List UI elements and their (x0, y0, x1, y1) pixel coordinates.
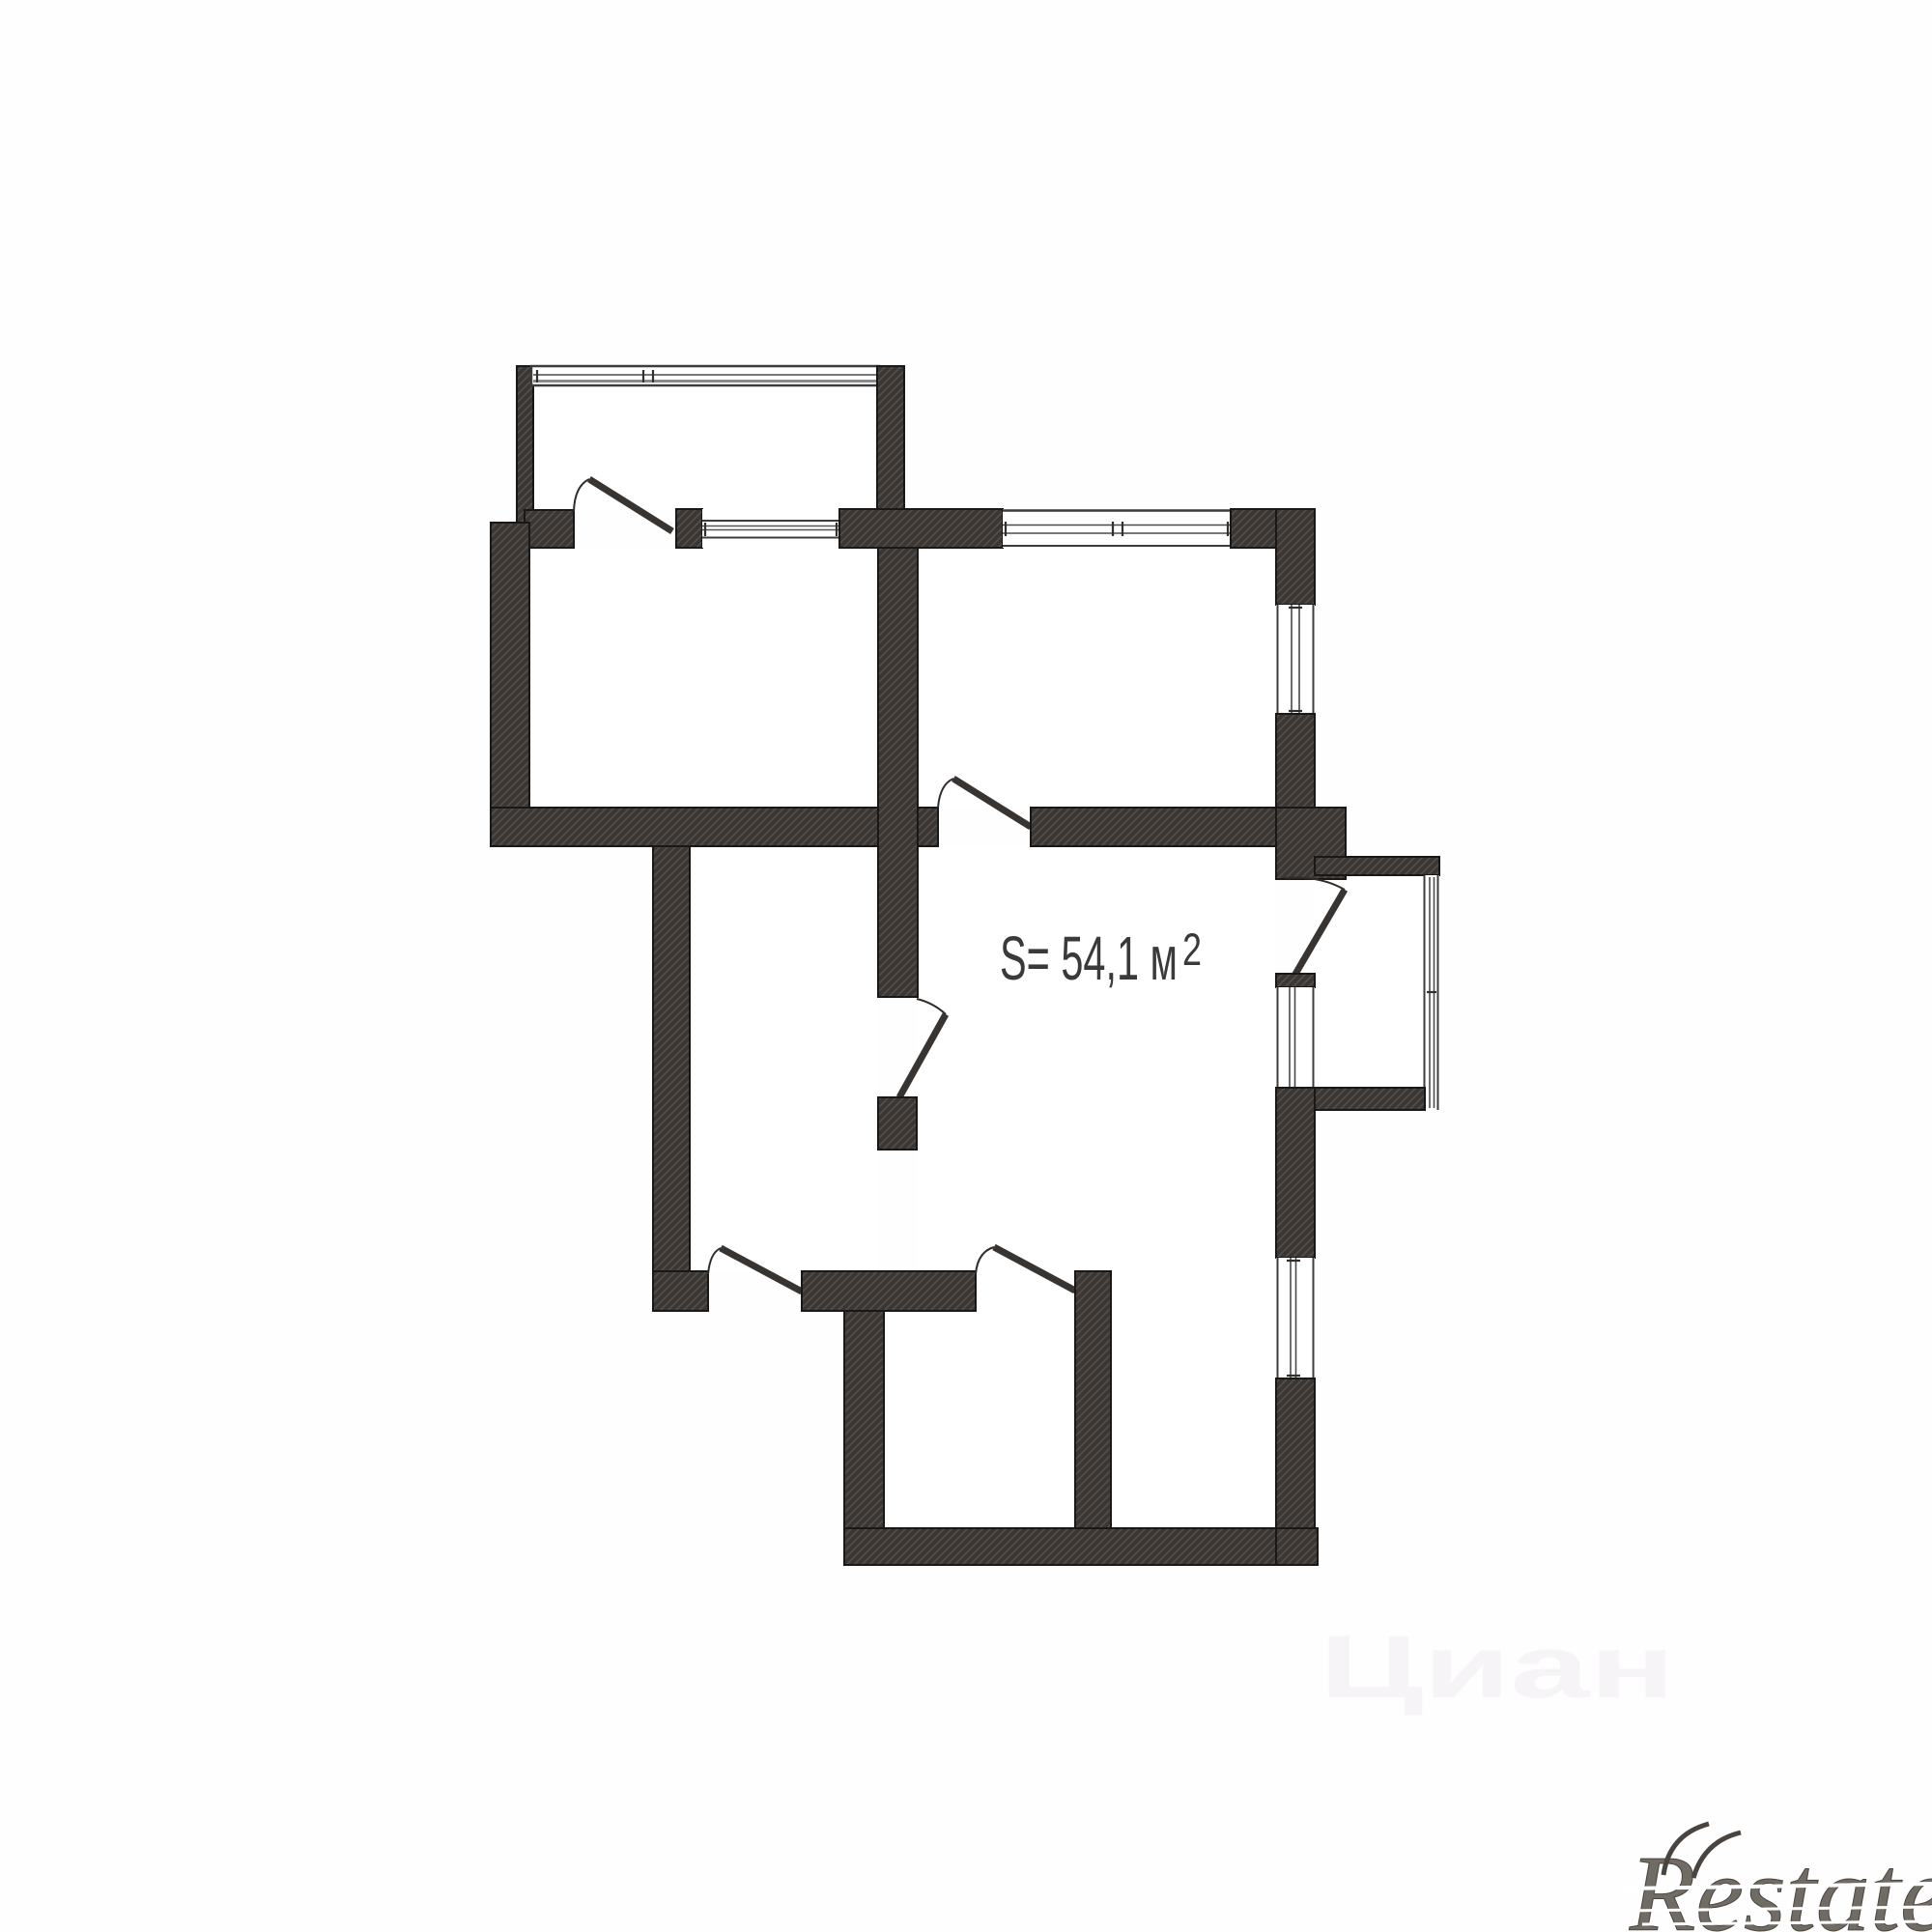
svg-text:2: 2 (1182, 923, 1202, 975)
svg-text:Циан: Циан (1320, 1618, 1675, 1717)
svg-text:S= 54,1 м: S= 54,1 м (1000, 923, 1178, 993)
